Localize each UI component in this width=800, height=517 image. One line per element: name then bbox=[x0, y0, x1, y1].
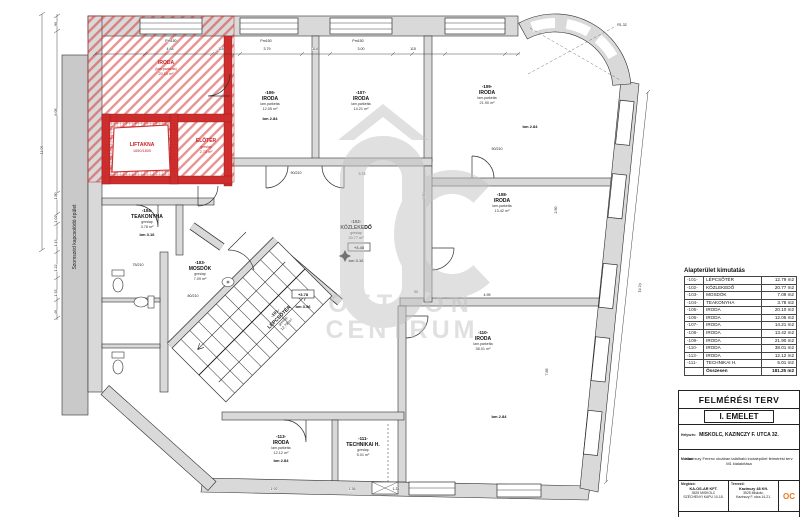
designer-office-box: Tervező: Kazinczy 48 Kft. 3525 Miskolc, … bbox=[729, 481, 779, 511]
dimension-label: 4.95 bbox=[484, 293, 491, 297]
dimension-label: 1.36 bbox=[349, 487, 356, 491]
svg-text:-113-: -113- bbox=[276, 434, 287, 439]
room-label-106: -106- IRODA lam.parketta 12.05 m² bm 2.8… bbox=[260, 90, 279, 121]
svg-text:greslap: greslap bbox=[200, 145, 212, 149]
dimension-label: 1.43 bbox=[54, 240, 58, 247]
svg-text:13.42 m²: 13.42 m² bbox=[495, 209, 511, 213]
dimension-label: 1.80 bbox=[54, 193, 58, 200]
doc-type: FELMÉRÉSI TERV bbox=[679, 391, 799, 409]
svg-text:38.01 m²: 38.01 m² bbox=[476, 347, 492, 351]
dimension-label: 6.08 bbox=[54, 109, 58, 116]
dimension-label: 14.70 bbox=[638, 283, 643, 292]
svg-text:MOSDÓK: MOSDÓK bbox=[189, 264, 212, 272]
room-label-103: -103- MOSDÓK greslap 7.09 m² bbox=[189, 260, 212, 281]
toilet-icon bbox=[112, 352, 124, 374]
svg-text:-106-: -106- bbox=[265, 90, 276, 95]
area-table-row: -109-IRODA21.90 m2 bbox=[685, 337, 797, 345]
neighbor-wall: Szomszéd kapcsolódó épület bbox=[62, 55, 88, 415]
dimension-label: 7.85 bbox=[545, 369, 549, 376]
svg-text:lam.parketta: lam.parketta bbox=[492, 204, 511, 208]
work-row: Munka: Kazinczy Ferenc utcában található… bbox=[679, 456, 799, 481]
floor-title: I. EMELET bbox=[679, 409, 799, 425]
red-zone bbox=[88, 16, 234, 186]
area-table-row: -105-IRODA20.10 m2 bbox=[685, 307, 797, 315]
dimension-label: 80/210 bbox=[188, 294, 199, 298]
svg-text:14.21 m²: 14.21 m² bbox=[354, 107, 370, 111]
svg-text:LIFTAKNA: LIFTAKNA bbox=[130, 142, 155, 148]
toilet-icon bbox=[112, 270, 124, 292]
svg-text:-110-: -110- bbox=[478, 330, 489, 335]
svg-text:IRODA: IRODA bbox=[158, 60, 175, 66]
svg-text:greslap: greslap bbox=[357, 448, 369, 452]
dimension-label: Pm150 bbox=[352, 39, 363, 43]
floor-plan-sheet: Szomszéd kapcsolódó épület bbox=[0, 0, 800, 517]
dimension-label: Pm150 bbox=[260, 39, 271, 43]
svg-text:1650/1800: 1650/1800 bbox=[133, 149, 151, 153]
dimension-label: 90/210 bbox=[291, 171, 302, 175]
title-block: FELMÉRÉSI TERV I. EMELET Helyszín: MISKO… bbox=[678, 390, 800, 517]
svg-text:5.01 m²: 5.01 m² bbox=[357, 453, 371, 457]
svg-text:12.12 m²: 12.12 m² bbox=[274, 451, 290, 455]
svg-text:-109-: -109- bbox=[482, 84, 493, 89]
site-label: Helyszín: bbox=[681, 433, 696, 437]
dimension-label: 3.00 bbox=[358, 47, 365, 51]
area-table-title: Alapterület kimutatás bbox=[684, 268, 797, 274]
svg-text:bm 2.84: bm 2.84 bbox=[274, 458, 290, 463]
svg-text:7.09 m²: 7.09 m² bbox=[194, 277, 208, 281]
level-bm: bm 3.56 bbox=[296, 304, 312, 309]
area-table-row: -107-IRODA14.21 m2 bbox=[685, 322, 797, 330]
area-table-row: Összesen181.25 m2 bbox=[685, 367, 797, 375]
room-label-113: -113- IRODA lam.parketta 12.12 m² bm 2.8… bbox=[271, 434, 290, 463]
dimension-label: 114 bbox=[312, 47, 318, 51]
dimension-label: 11.06 bbox=[40, 146, 44, 155]
client-box: Megbízó: KA-OS-AR KFT. 3525 MISKOLC SZÉC… bbox=[679, 481, 729, 511]
area-table-row: -111-TECHNIKAI H.5.01 m2 bbox=[685, 360, 797, 368]
dimension-label: 1.92 bbox=[271, 487, 278, 491]
area-table-row: -113-IRODA12.12 m2 bbox=[685, 352, 797, 360]
area-table-body: -101-LÉPCSŐTÉR12.79 m2-102-KÖZLEKEDŐ20.7… bbox=[685, 277, 797, 376]
svg-text:20.10 m²: 20.10 m² bbox=[159, 72, 175, 76]
dimension-label: 2.50 bbox=[554, 207, 558, 214]
svg-text:-111-: -111- bbox=[358, 436, 368, 441]
svg-text:-104-: -104- bbox=[142, 208, 153, 213]
parties-row: Megbízó: KA-OS-AR KFT. 3525 MISKOLC SZÉC… bbox=[679, 481, 799, 512]
svg-text:21.90 m²: 21.90 m² bbox=[480, 101, 496, 105]
svg-text:bm 3.16: bm 3.16 bbox=[140, 232, 156, 237]
svg-text:lam.parketta: lam.parketta bbox=[477, 96, 496, 100]
dimension-label: 1.22 bbox=[54, 265, 58, 272]
watermark-line1: OTTHON bbox=[328, 290, 476, 318]
svg-text:12.05 m²: 12.05 m² bbox=[263, 107, 279, 111]
area-table-row: -110-IRODA38.01 m2 bbox=[685, 345, 797, 353]
room-label-liftakna: LIFTAKNA 1650/1800 bbox=[130, 142, 155, 153]
dimension-label: 75/210 bbox=[133, 263, 144, 267]
toilet-icon bbox=[134, 296, 154, 308]
svg-text:bm 2.84: bm 2.84 bbox=[523, 124, 539, 129]
room-label-111: -111- TECHNIKAI H. greslap 5.01 m² bbox=[346, 436, 380, 457]
dimension-label: 4.88 bbox=[167, 47, 174, 51]
svg-text:-103-: -103- bbox=[195, 260, 206, 265]
svg-text:2.73 m²: 2.73 m² bbox=[200, 150, 214, 154]
svg-text:greslap: greslap bbox=[194, 272, 206, 276]
svg-text:lam.parketta: lam.parketta bbox=[260, 102, 279, 106]
svg-text:ELŐTÉR: ELŐTÉR bbox=[196, 136, 217, 144]
dimension-label: Pm150 bbox=[165, 39, 176, 43]
site-value: MISKOLC, KAZINCZY F. UTCA 32. bbox=[679, 432, 799, 438]
dimension-label: 115 bbox=[218, 47, 224, 51]
svg-text:greslap: greslap bbox=[141, 220, 153, 224]
svg-text:lam.parketta: lam.parketta bbox=[351, 102, 370, 106]
dimension-label: 1.02 bbox=[54, 216, 58, 223]
site-row: Helyszín: MISKOLC, KAZINCZY F. UTCA 32. bbox=[679, 432, 799, 450]
floor-plan-drawing: Szomszéd kapcsolódó épület bbox=[0, 0, 678, 517]
area-table-row: -101-LÉPCSŐTÉR12.79 m2 bbox=[685, 277, 797, 285]
dimension-label: 1.34 bbox=[393, 487, 400, 491]
area-table-row: -102-KÖZLEKEDŐ20.77 m2 bbox=[685, 284, 797, 292]
sheet-right-panel: Alapterület kimutatás -101-LÉPCSŐTÉR12.7… bbox=[678, 0, 800, 517]
work-value: Kazinczy Ferenc utcában található irodaé… bbox=[679, 456, 799, 466]
room-label-104: -104- TEAKONYHA greslap 3.78 m² bm 3.16 bbox=[131, 208, 163, 237]
neighbor-label: Szomszéd kapcsolódó épület bbox=[72, 204, 78, 270]
dimension-label: R1.32 bbox=[617, 23, 627, 27]
dimension-label: 90 bbox=[54, 22, 58, 26]
svg-text:bm 2.84: bm 2.84 bbox=[492, 414, 508, 419]
room-label-107: -107- IRODA lam.parketta 14.21 m² bbox=[351, 90, 370, 111]
area-table-row: -104-TEAKONYHA3.78 m2 bbox=[685, 299, 797, 307]
svg-text:-107-: -107- bbox=[356, 90, 367, 95]
area-table-row: -106-IRODA12.05 m2 bbox=[685, 314, 797, 322]
dimension-label: 115 bbox=[410, 47, 416, 51]
watermark-line2: CENTRUM bbox=[326, 316, 479, 344]
dimension-label: 90/210 bbox=[492, 147, 503, 151]
svg-text:lam.parketta: lam.parketta bbox=[271, 446, 290, 450]
work-label: Munka: bbox=[681, 457, 693, 461]
level-value: +3.78 bbox=[298, 292, 309, 297]
svg-text:(lam.parketta): (lam.parketta) bbox=[155, 67, 177, 71]
svg-text:3.78 m²: 3.78 m² bbox=[141, 225, 155, 229]
washbasin-icon bbox=[222, 278, 234, 287]
area-table-row: -103-MOSDÓK7.09 m2 bbox=[685, 292, 797, 300]
svg-text:-108-: -108- bbox=[497, 192, 508, 197]
dimension-label: 3.79 bbox=[264, 47, 271, 51]
room-label-108: -108- IRODA lam.parketta 13.42 m² bbox=[492, 192, 511, 213]
dimension-label: 40 bbox=[54, 310, 58, 314]
area-table-row: -108-IRODA13.42 m2 bbox=[685, 330, 797, 338]
area-table: Alapterület kimutatás -101-LÉPCSŐTÉR12.7… bbox=[684, 268, 797, 376]
svg-text:bm 2.84: bm 2.84 bbox=[263, 116, 279, 121]
oc-stamp: OC bbox=[779, 481, 799, 511]
dimension-label: 1.33 bbox=[54, 290, 58, 297]
watermark-logo: OTTHON CENTRUM bbox=[326, 104, 482, 344]
room-label-109: -109- IRODA lam.parketta 21.90 m² bm 2.8… bbox=[477, 84, 538, 129]
